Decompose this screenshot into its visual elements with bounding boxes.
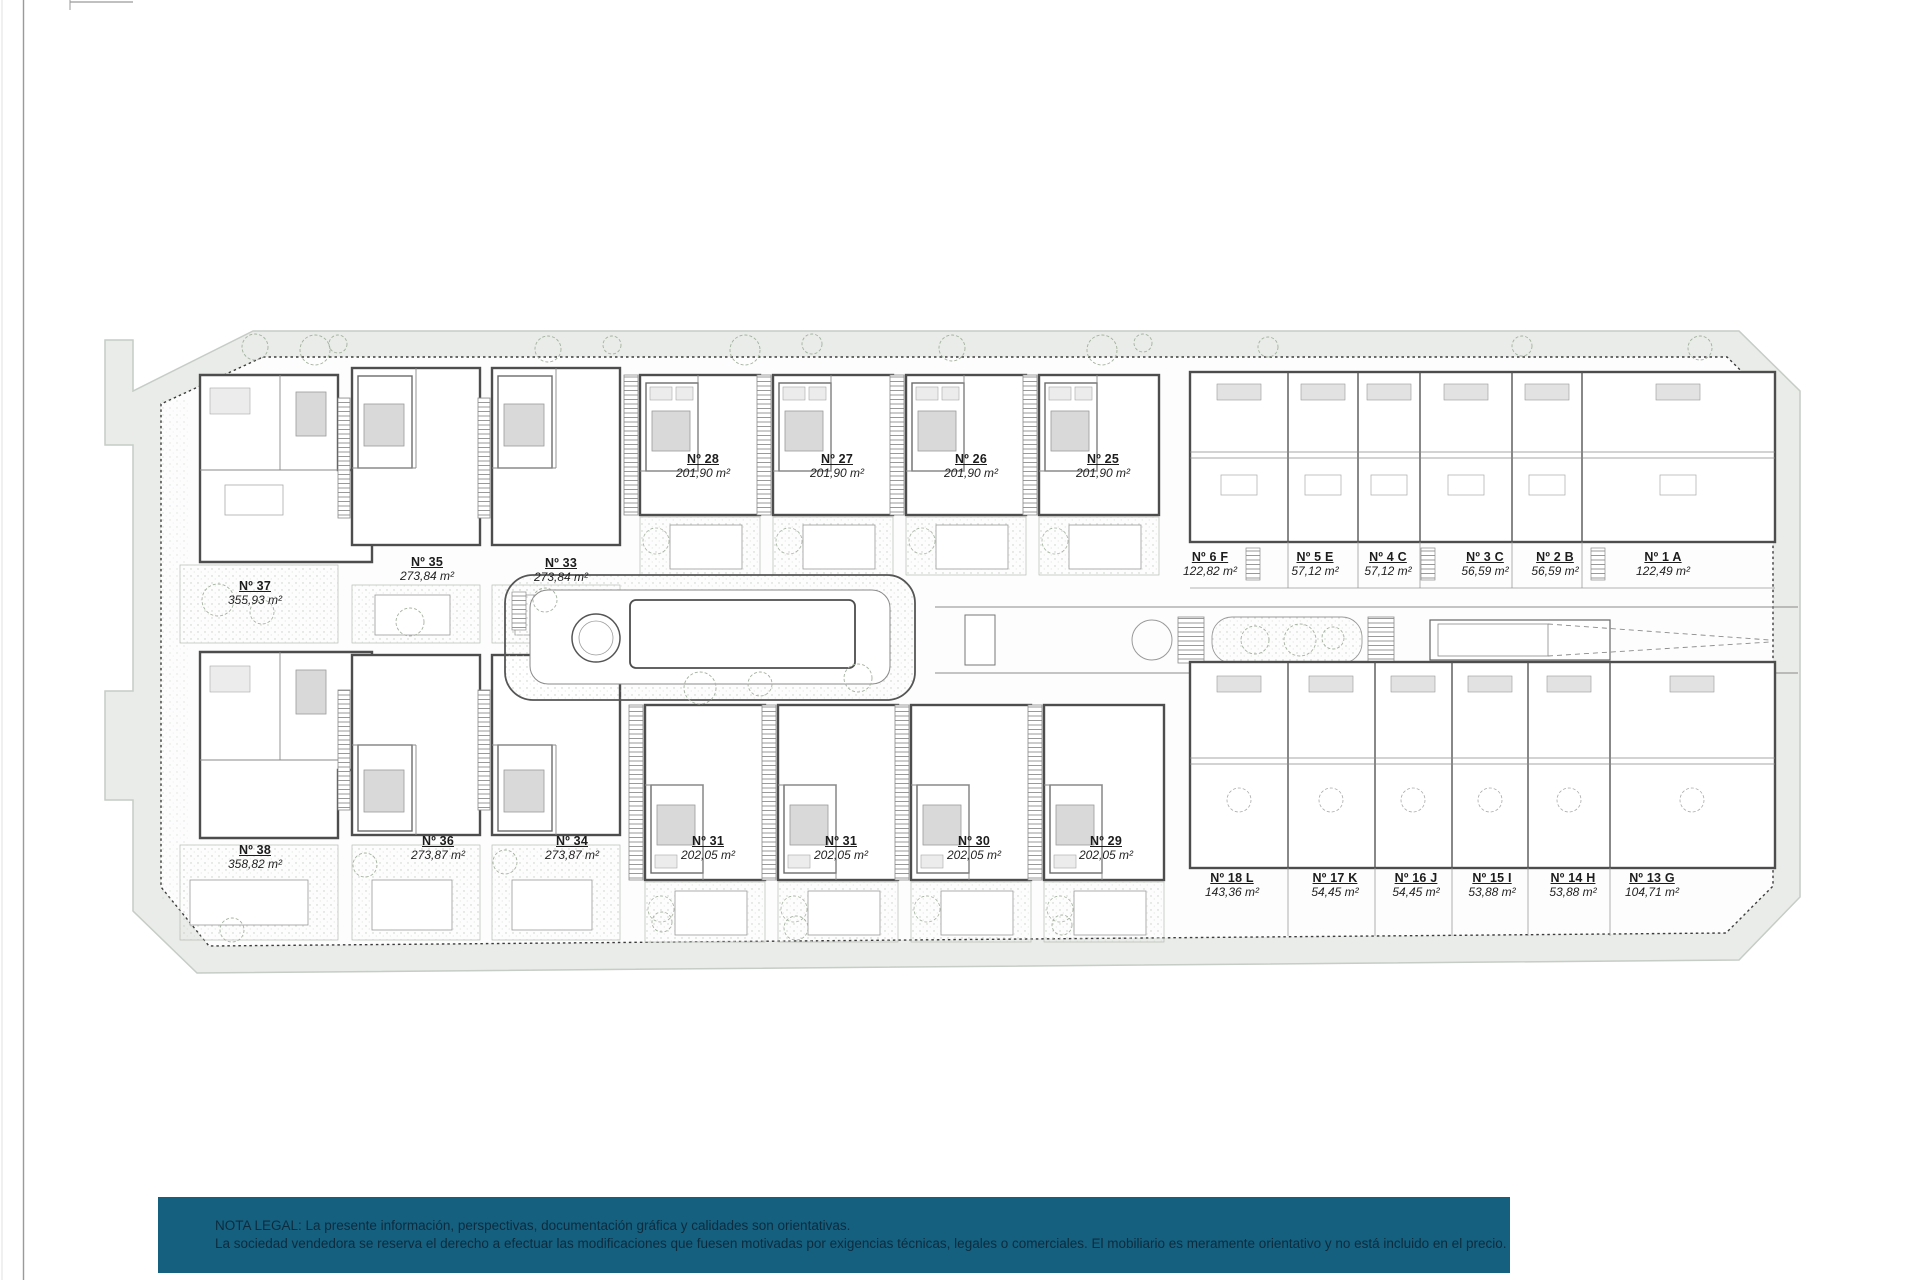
unit-label: Nº 4 C57,12 m² <box>1364 551 1411 578</box>
unit-area: 54,45 m² <box>1311 886 1358 899</box>
unit-area: 202,05 m² <box>1079 849 1133 862</box>
unit-area: 104,71 m² <box>1625 886 1679 899</box>
unit-area: 202,05 m² <box>947 849 1001 862</box>
unit-area: 56,59 m² <box>1531 565 1578 578</box>
unit-label: Nº 6 F122,82 m² <box>1183 551 1237 578</box>
unit-number: Nº 16 J <box>1392 872 1439 885</box>
unit-label: Nº 28201,90 m² <box>676 453 730 480</box>
unit-number: Nº 26 <box>944 453 998 466</box>
unit-label: Nº 25201,90 m² <box>1076 453 1130 480</box>
unit-area: 122,49 m² <box>1636 565 1690 578</box>
brochure-page: Nº 37355,93 m²Nº 35273,84 m²Nº 33273,84 … <box>0 0 1920 1280</box>
unit-number: Nº 18 L <box>1205 872 1259 885</box>
legal-note-banner: NOTA LEGAL: La presente información, per… <box>158 1197 1510 1273</box>
unit-area: 54,45 m² <box>1392 886 1439 899</box>
unit-area: 201,90 m² <box>810 467 864 480</box>
unit-number: Nº 3 C <box>1461 551 1508 564</box>
house-36 <box>338 655 480 940</box>
unit-label: Nº 31202,05 m² <box>681 835 735 862</box>
unit-label: Nº 33273,84 m² <box>534 557 588 584</box>
unit-area: 201,90 m² <box>1076 467 1130 480</box>
unit-number: Nº 30 <box>947 835 1001 848</box>
unit-area: 201,90 m² <box>676 467 730 480</box>
legal-note-line2: La sociedad vendedora se reserva el dere… <box>215 1235 1492 1253</box>
unit-area: 201,90 m² <box>944 467 998 480</box>
houses-31-29 <box>629 705 1164 942</box>
unit-number: Nº 31 <box>814 835 868 848</box>
unit-label: Nº 35273,84 m² <box>400 556 454 583</box>
unit-area: 53,88 m² <box>1549 886 1596 899</box>
unit-number: Nº 28 <box>676 453 730 466</box>
pool <box>630 600 855 668</box>
unit-label: Nº 31202,05 m² <box>814 835 868 862</box>
unit-area: 358,82 m² <box>228 858 282 871</box>
unit-number: Nº 35 <box>400 556 454 569</box>
unit-area: 56,59 m² <box>1461 565 1508 578</box>
unit-number: Nº 31 <box>681 835 735 848</box>
unit-area: 57,12 m² <box>1291 565 1338 578</box>
unit-label: Nº 30202,05 m² <box>947 835 1001 862</box>
unit-number: Nº 6 F <box>1183 551 1237 564</box>
unit-area: 273,84 m² <box>400 570 454 583</box>
unit-number: Nº 4 C <box>1364 551 1411 564</box>
unit-number: Nº 14 H <box>1549 872 1596 885</box>
site-plan <box>0 0 1920 1280</box>
unit-label: Nº 38358,82 m² <box>228 844 282 871</box>
unit-label: Nº 3 C56,59 m² <box>1461 551 1508 578</box>
unit-label: Nº 2 B56,59 m² <box>1531 551 1578 578</box>
unit-label: Nº 17 K54,45 m² <box>1311 872 1358 899</box>
unit-area: 202,05 m² <box>681 849 735 862</box>
unit-number: Nº 36 <box>411 835 465 848</box>
unit-number: Nº 33 <box>534 557 588 570</box>
legal-note-line1: NOTA LEGAL: La presente información, per… <box>215 1217 1492 1235</box>
unit-number: Nº 1 A <box>1636 551 1690 564</box>
unit-area: 53,88 m² <box>1468 886 1515 899</box>
unit-number: Nº 25 <box>1076 453 1130 466</box>
unit-label: Nº 16 J54,45 m² <box>1392 872 1439 899</box>
unit-area: 273,87 m² <box>411 849 465 862</box>
unit-area: 355,93 m² <box>228 594 282 607</box>
unit-number: Nº 13 G <box>1625 872 1679 885</box>
page-edge-lines <box>2 0 133 1280</box>
unit-label: Nº 5 E57,12 m² <box>1291 551 1338 578</box>
unit-area: 273,87 m² <box>545 849 599 862</box>
unit-number: Nº 34 <box>545 835 599 848</box>
unit-label: Nº 29202,05 m² <box>1079 835 1133 862</box>
unit-area: 122,82 m² <box>1183 565 1237 578</box>
unit-number: Nº 38 <box>228 844 282 857</box>
pool-courtyard <box>505 575 915 704</box>
unit-number: Nº 5 E <box>1291 551 1338 564</box>
unit-label: Nº 27201,90 m² <box>810 453 864 480</box>
unit-label: Nº 18 L143,36 m² <box>1205 872 1259 899</box>
unit-number: Nº 15 I <box>1468 872 1515 885</box>
unit-area: 273,84 m² <box>534 571 588 584</box>
house-35 <box>338 368 480 643</box>
left-garden-strip <box>162 400 188 900</box>
unit-label: Nº 1 A122,49 m² <box>1636 551 1690 578</box>
unit-label: Nº 34273,87 m² <box>545 835 599 862</box>
unit-label: Nº 26201,90 m² <box>944 453 998 480</box>
unit-label: Nº 13 G104,71 m² <box>1625 872 1679 899</box>
unit-number: Nº 27 <box>810 453 864 466</box>
unit-label: Nº 15 I53,88 m² <box>1468 872 1515 899</box>
unit-label: Nº 37355,93 m² <box>228 580 282 607</box>
unit-number: Nº 17 K <box>1311 872 1358 885</box>
unit-area: 202,05 m² <box>814 849 868 862</box>
unit-label: Nº 14 H53,88 m² <box>1549 872 1596 899</box>
unit-number: Nº 29 <box>1079 835 1133 848</box>
unit-number: Nº 2 B <box>1531 551 1578 564</box>
unit-number: Nº 37 <box>228 580 282 593</box>
unit-area: 57,12 m² <box>1364 565 1411 578</box>
unit-label: Nº 36273,87 m² <box>411 835 465 862</box>
unit-area: 143,36 m² <box>1205 886 1259 899</box>
